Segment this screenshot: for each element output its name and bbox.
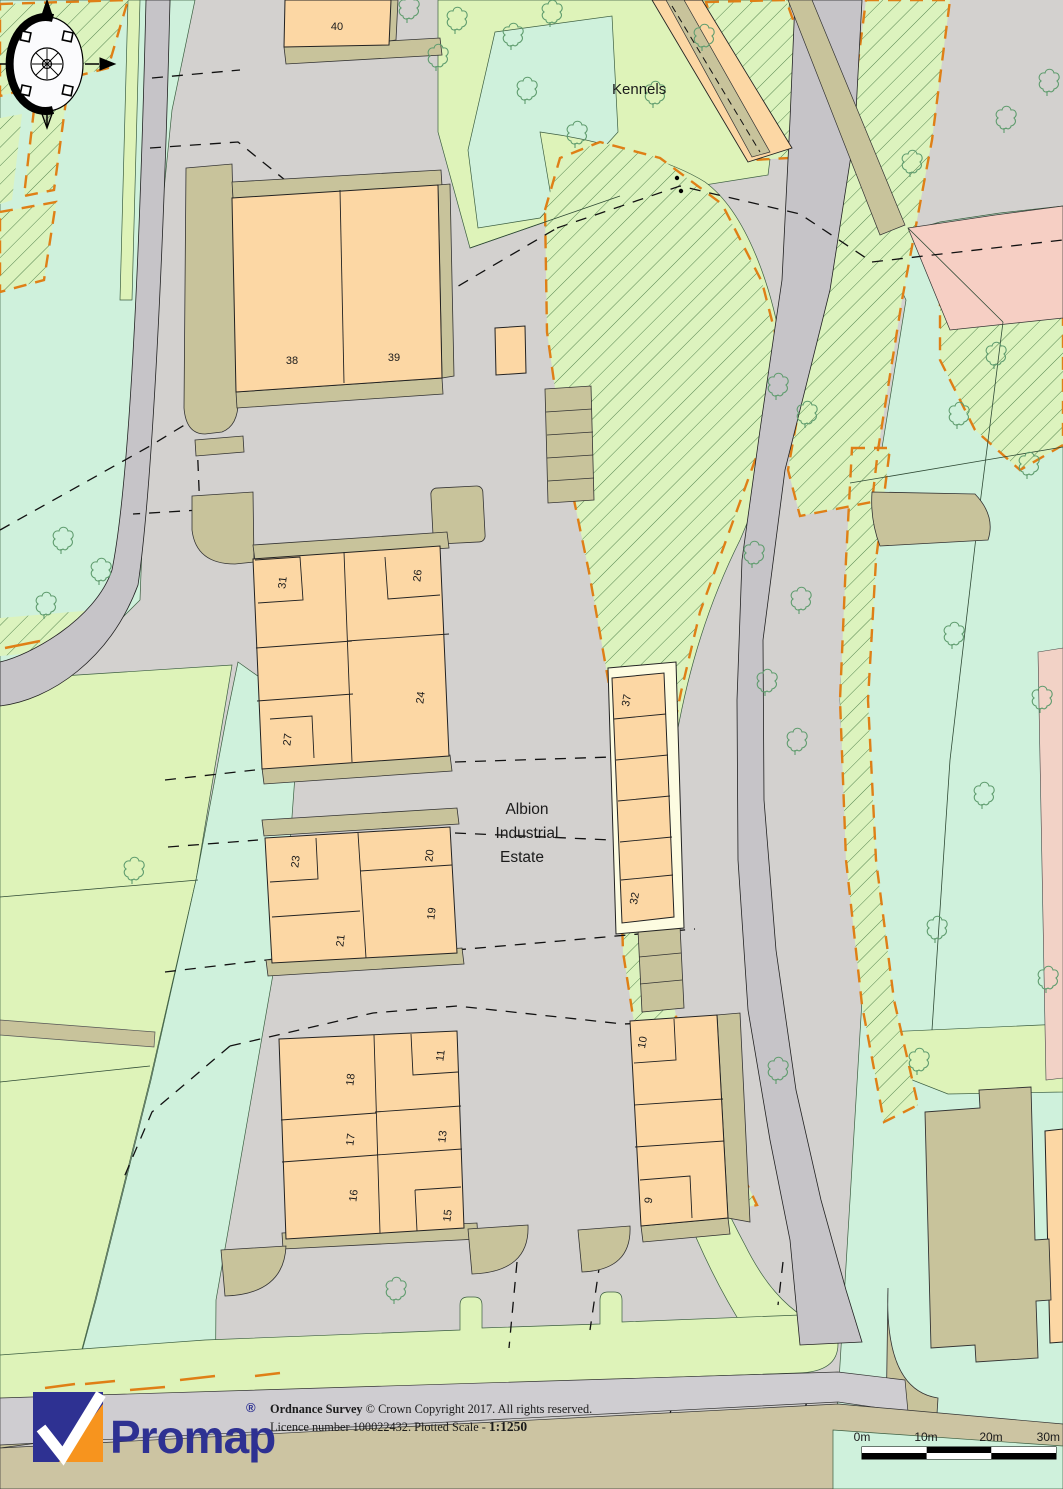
building-number: 18 bbox=[344, 1073, 357, 1087]
building-small bbox=[495, 326, 526, 375]
scale-label-30: 30m bbox=[1037, 1430, 1060, 1444]
estate-label-line1: Albion bbox=[505, 801, 548, 818]
building-number: 31 bbox=[276, 576, 289, 590]
svg-text:Licence number 100022432. Plot: Licence number 100022432. Plotted Scale … bbox=[270, 1419, 527, 1434]
building-number: 38 bbox=[286, 355, 298, 367]
building-number: 37 bbox=[620, 693, 634, 707]
building-number: 27 bbox=[281, 733, 294, 747]
building-number: 15 bbox=[441, 1209, 454, 1223]
building-23-20-19-21 bbox=[265, 827, 457, 963]
building-tan-complex bbox=[925, 1087, 1051, 1362]
building-number: 26 bbox=[411, 569, 424, 583]
registered-mark: ® bbox=[246, 1400, 256, 1415]
building-number: 23 bbox=[289, 855, 302, 869]
building-number: 39 bbox=[388, 352, 400, 364]
building-number: 17 bbox=[344, 1133, 357, 1147]
building-number: 16 bbox=[347, 1189, 360, 1203]
scale-label-10: 10m bbox=[914, 1430, 937, 1444]
building-number: 40 bbox=[331, 21, 343, 33]
svg-text:Ordnance Survey © Crown Copyri: Ordnance Survey © Crown Copyright 2017. … bbox=[270, 1402, 592, 1416]
building-37-32 bbox=[612, 673, 674, 923]
building-number: 11 bbox=[434, 1049, 447, 1062]
building-number: 19 bbox=[425, 907, 438, 921]
copyright-rest: © Crown Copyright 2017. All rights reser… bbox=[363, 1402, 593, 1416]
building-number: 21 bbox=[334, 934, 347, 948]
building-number: 10 bbox=[636, 1035, 650, 1049]
building-number: 32 bbox=[628, 891, 642, 905]
building-number: 13 bbox=[436, 1130, 449, 1144]
estate-label-line3: Estate bbox=[500, 849, 544, 866]
licence-text: Licence number 100022432. Plotted Scale … bbox=[270, 1420, 489, 1434]
building-38-39 bbox=[232, 185, 442, 392]
plotted-scale-value: 1:1250 bbox=[489, 1419, 527, 1434]
map-viewport[interactable]: Kennels Albion Industrial Estate El 40 3… bbox=[0, 0, 1063, 1489]
scale-label-0: 0m bbox=[854, 1430, 871, 1444]
scale-label-20: 20m bbox=[979, 1430, 1002, 1444]
promap-logo-text: Promap bbox=[110, 1411, 275, 1463]
building-number: 20 bbox=[423, 849, 436, 863]
scale-bar-segments bbox=[862, 1447, 1056, 1459]
copyright-os: Ordnance Survey bbox=[270, 1402, 363, 1416]
building-number: 24 bbox=[414, 691, 427, 705]
estate-label-line2: Industrial bbox=[496, 825, 559, 842]
os-map-canvas: Kennels Albion Industrial Estate El 40 3… bbox=[0, 0, 1063, 1489]
kennels-label: Kennels bbox=[612, 81, 666, 98]
